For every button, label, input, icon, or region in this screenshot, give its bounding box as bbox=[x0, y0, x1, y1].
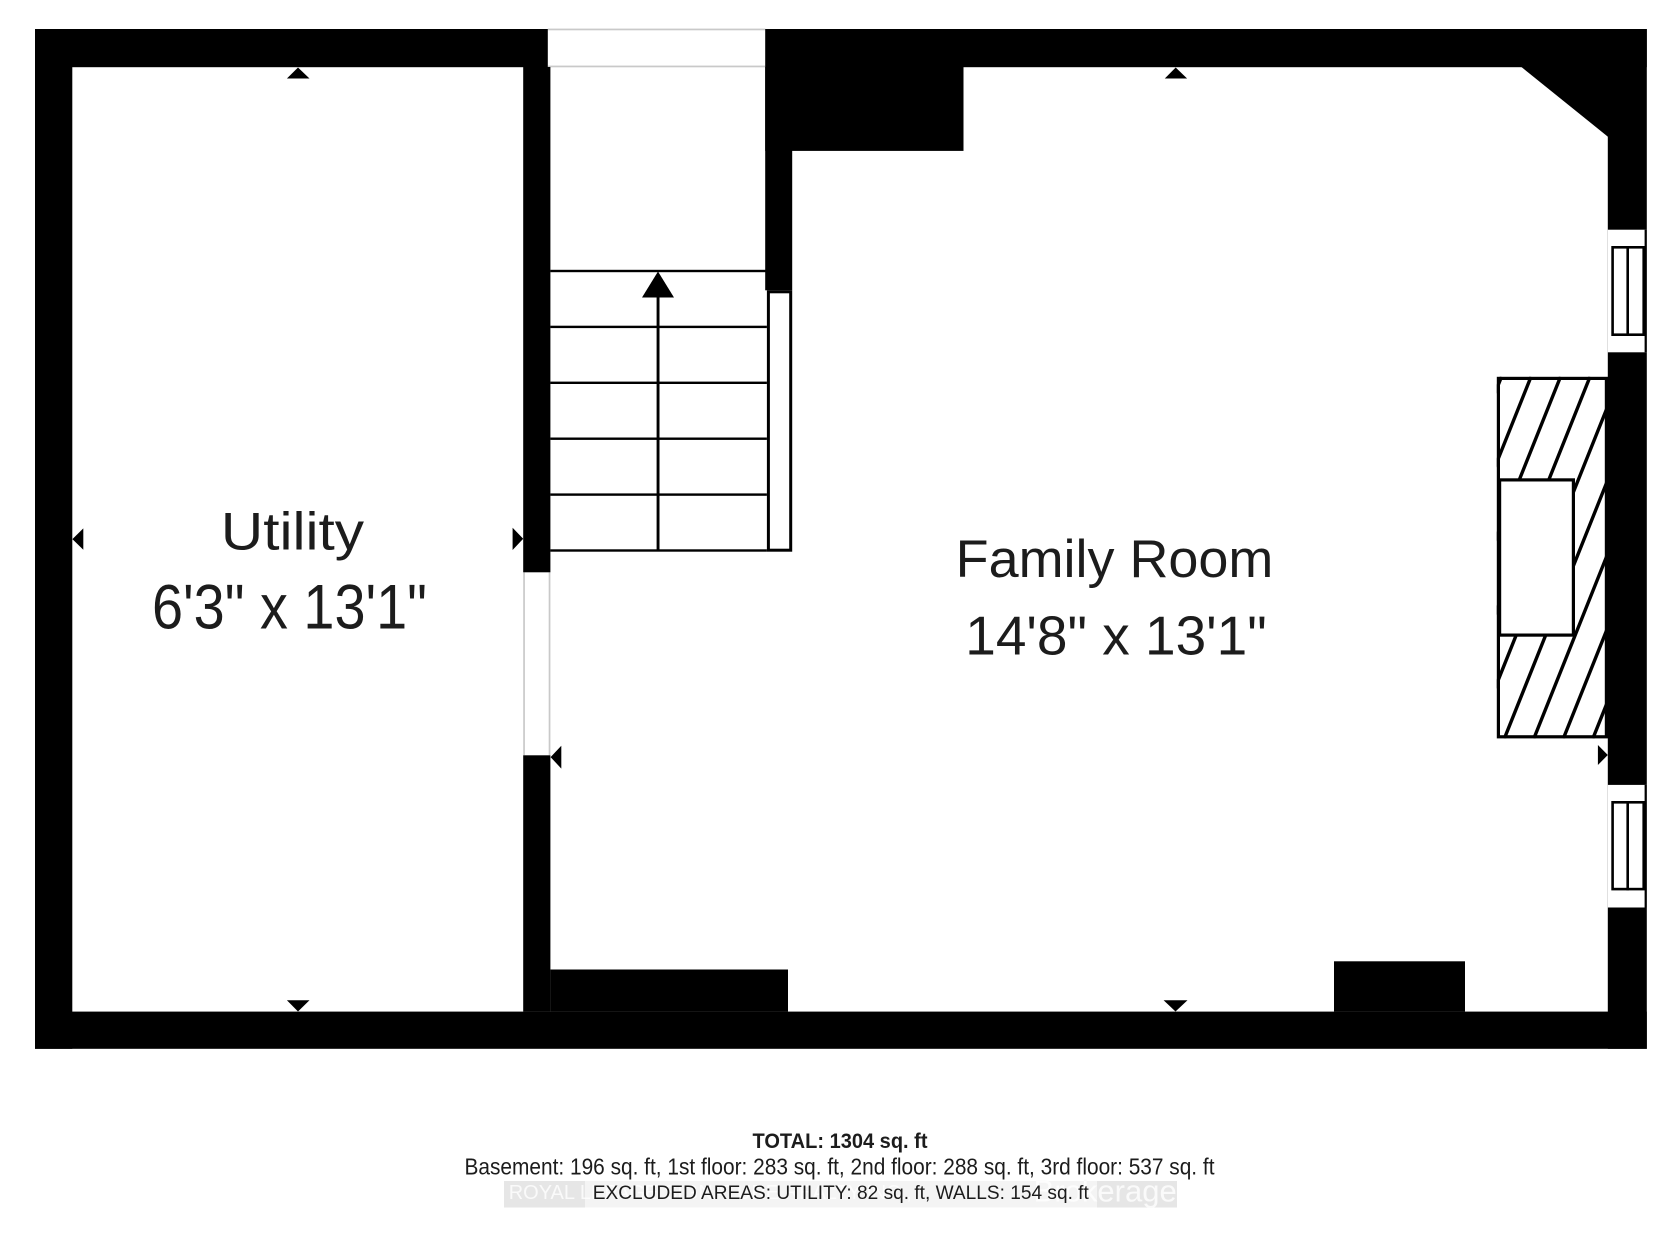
svg-text:Family Room: Family Room bbox=[956, 530, 1274, 589]
svg-text:6'3" x 13'1": 6'3" x 13'1" bbox=[152, 573, 427, 643]
svg-text:EXCLUDED AREAS: UTILITY: 82 sq: EXCLUDED AREAS: UTILITY: 82 sq. ft, WALL… bbox=[593, 1182, 1090, 1204]
svg-text:Basement: 196 sq. ft, 1st floo: Basement: 196 sq. ft, 1st floor: 283 sq.… bbox=[465, 1153, 1215, 1179]
svg-text:Utility: Utility bbox=[221, 502, 365, 561]
svg-text:14'8" x 13'1": 14'8" x 13'1" bbox=[965, 606, 1267, 667]
svg-text:TOTAL: 1304 sq. ft: TOTAL: 1304 sq. ft bbox=[753, 1130, 928, 1153]
